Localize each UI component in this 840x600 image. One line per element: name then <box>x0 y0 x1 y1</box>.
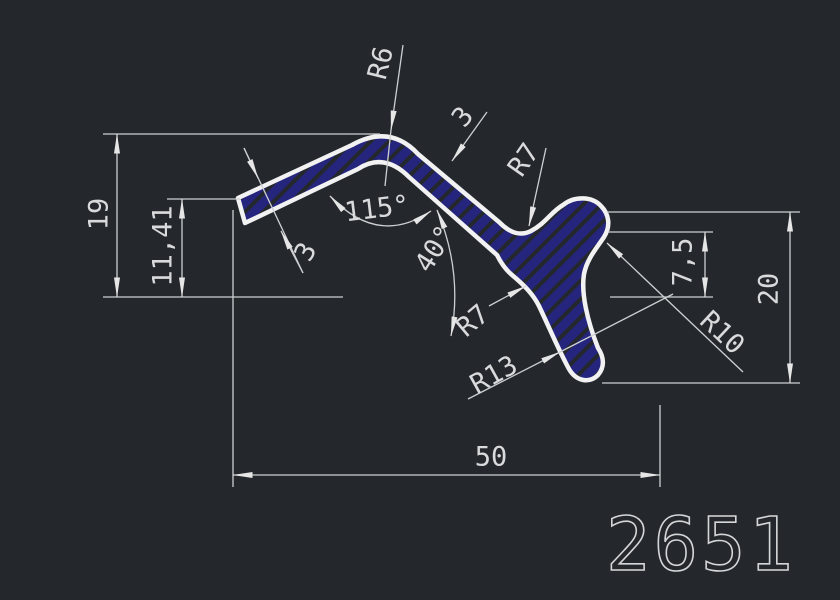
label-bottom-fillet-radius: R7 <box>451 299 496 344</box>
label-head-top-offset: 7,5 <box>668 238 699 287</box>
part-number-label: 2651 <box>606 502 796 588</box>
label-overall-width: 50 <box>475 442 508 473</box>
label-tail-fillet-radius: R13 <box>465 350 523 401</box>
leader-r7-bottom <box>489 286 526 306</box>
label-bend-angle: 115° <box>343 190 411 229</box>
cad-canvas[interactable]: 19 11,41 50 7,5 20 115° 40° R6 3 3 R7 R7… <box>0 0 840 600</box>
label-left-end-height: 11,41 <box>148 205 179 286</box>
label-head-height: 20 <box>754 273 785 306</box>
label-overall-height: 19 <box>84 198 115 231</box>
label-head-radius: R10 <box>694 305 751 361</box>
dimension-labels: 19 11,41 50 7,5 20 115° 40° R6 3 3 R7 R7… <box>84 43 785 472</box>
profile-drawing: 19 11,41 50 7,5 20 115° 40° R6 3 3 R7 R7… <box>0 0 840 600</box>
leader-thickness-left-arrow-top <box>244 148 258 178</box>
label-thickness-left: 3 <box>288 238 323 267</box>
label-bend-radius: R6 <box>362 43 400 82</box>
